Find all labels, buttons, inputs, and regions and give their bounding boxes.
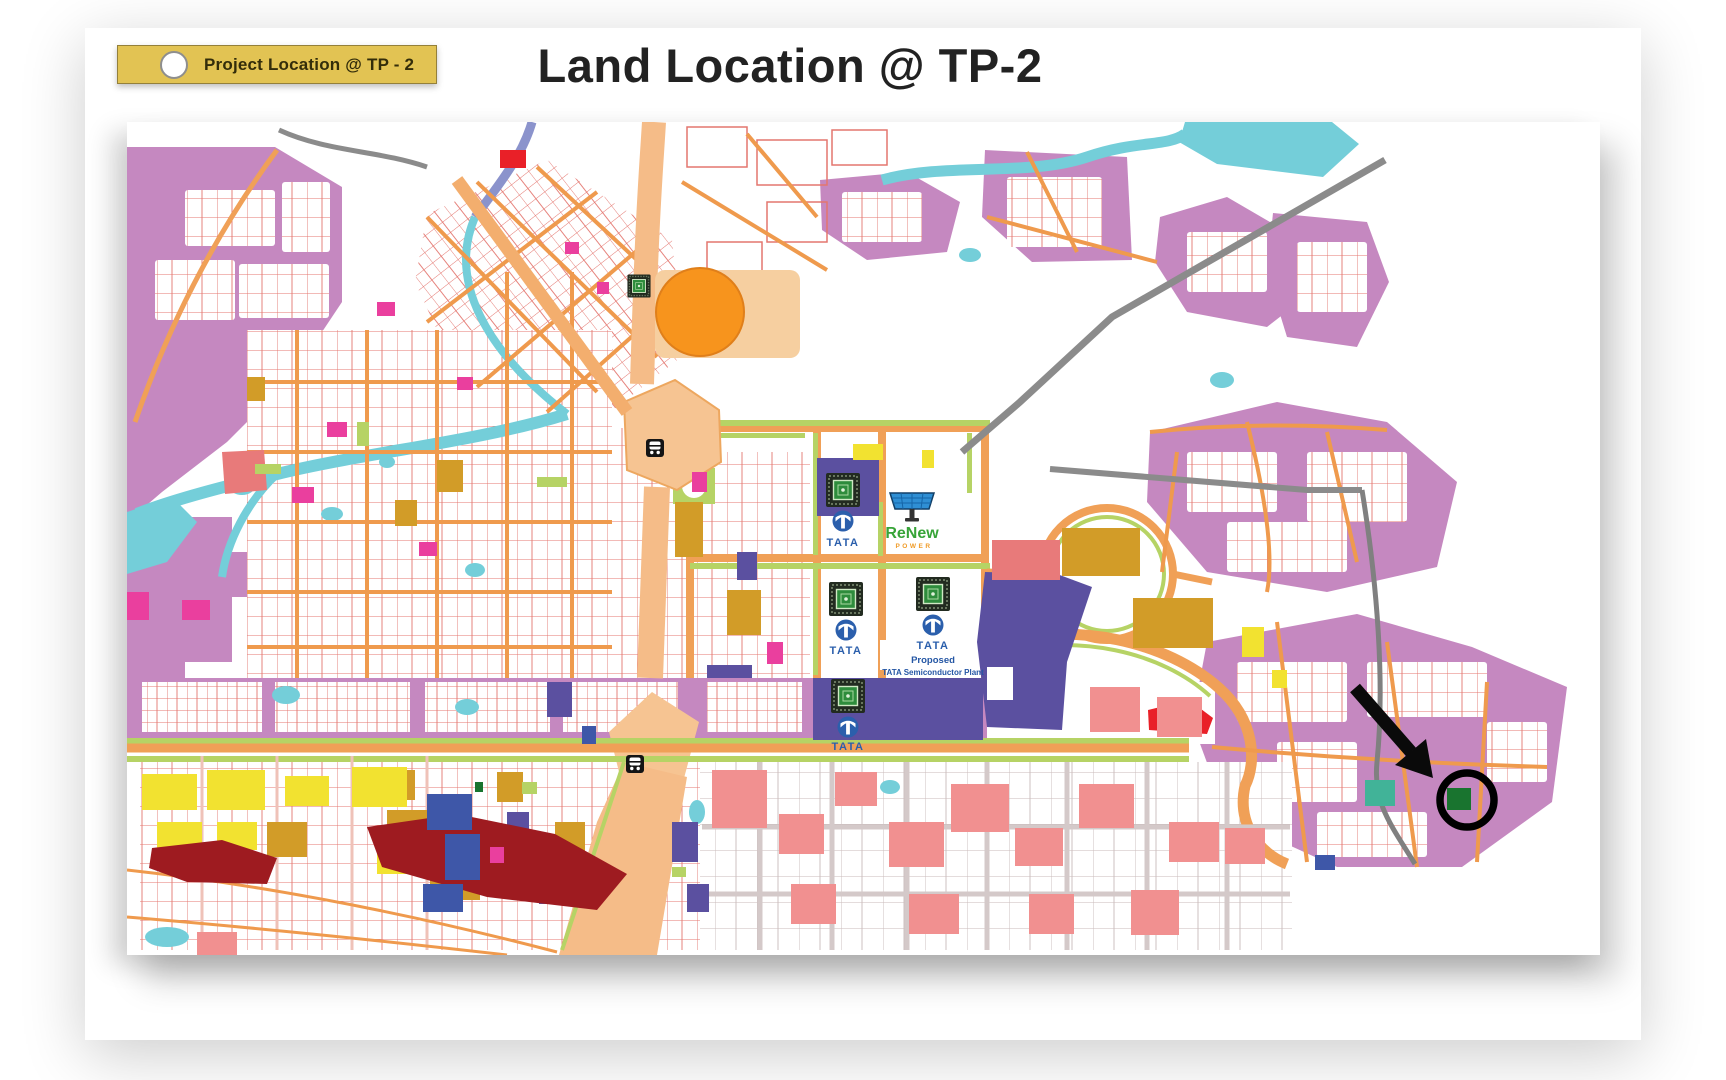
blue-zone bbox=[445, 834, 480, 880]
renew-power-label: POWER bbox=[895, 543, 932, 550]
semiconductor-chip-icon bbox=[829, 582, 863, 616]
renew-label: ReNew bbox=[885, 525, 939, 542]
semiconductor-chip-icon bbox=[916, 577, 950, 611]
tata-logo-icon bbox=[836, 620, 857, 641]
yellow-zone bbox=[207, 770, 265, 810]
semiconductor-chip-icon bbox=[831, 679, 865, 713]
page-title: Land Location @ TP-2 bbox=[85, 38, 1495, 93]
project-land-parcel bbox=[1447, 788, 1471, 810]
slide: Project Location @ TP - 2 Land Location … bbox=[85, 28, 1641, 1040]
tata-logo-icon bbox=[833, 511, 854, 532]
salmon-zone bbox=[951, 784, 1009, 832]
semiconductor-chip-icon bbox=[627, 274, 650, 297]
magenta-zone bbox=[419, 542, 437, 556]
zoning-map: TATA ReNew POWER TATA TATA Proposed bbox=[127, 122, 1600, 955]
railway-station-icon bbox=[646, 439, 664, 457]
railway-station-icon bbox=[626, 755, 644, 773]
tata-logo-icon bbox=[838, 717, 859, 738]
town-centre-circle bbox=[656, 268, 744, 356]
tata-label: TATA bbox=[917, 640, 950, 652]
map-sheet: TATA ReNew POWER TATA TATA Proposed bbox=[127, 122, 1600, 955]
tata-label: TATA bbox=[832, 741, 865, 753]
commercial-zone bbox=[1133, 598, 1213, 648]
tata-label: TATA bbox=[827, 537, 860, 549]
tata-logo-icon bbox=[923, 615, 944, 636]
tata-label: TATA bbox=[830, 645, 863, 657]
proposed-plant-label-line1: Proposed bbox=[911, 655, 955, 666]
teal-parcel bbox=[1365, 780, 1395, 806]
proposed-plant-label-line2: TATA Semiconductor Plant bbox=[882, 668, 984, 677]
semiconductor-chip-icon bbox=[826, 473, 860, 507]
